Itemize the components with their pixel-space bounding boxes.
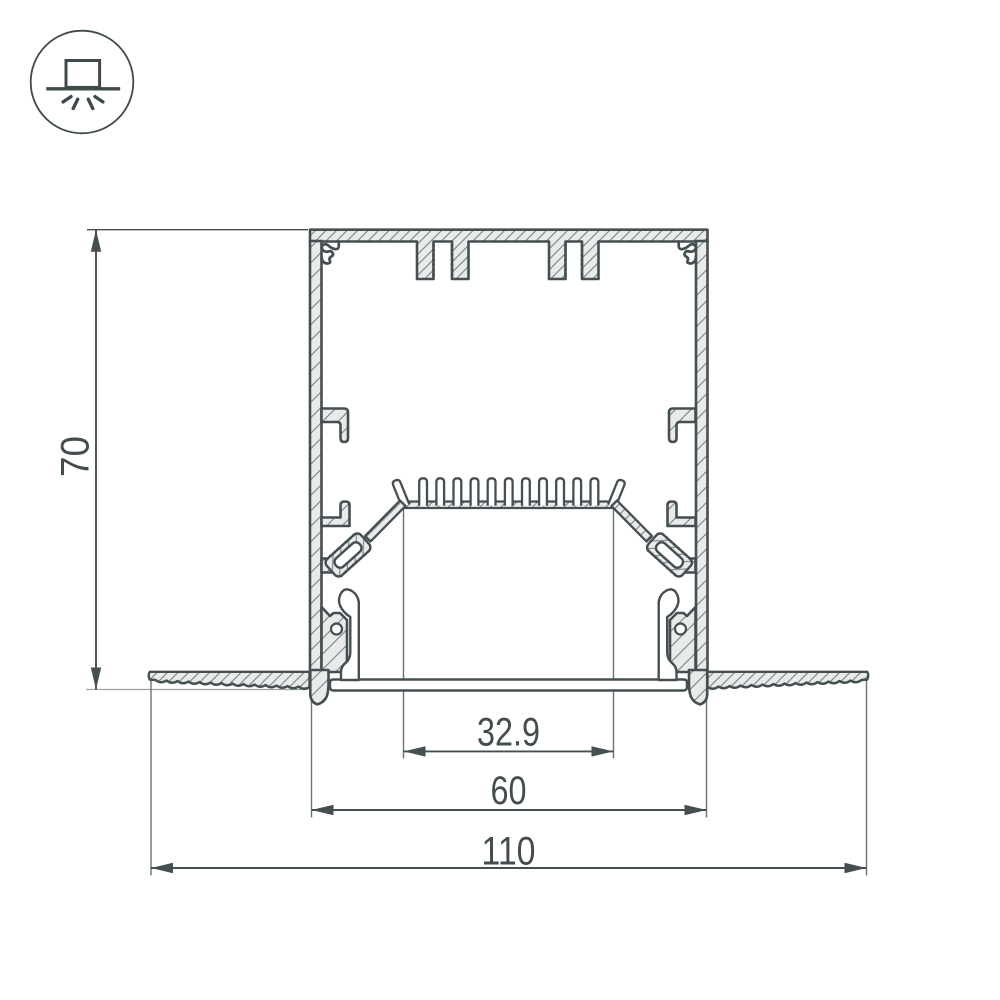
svg-text:32.9: 32.9 — [477, 711, 540, 755]
svg-text:60: 60 — [491, 769, 527, 813]
svg-text:70: 70 — [54, 436, 98, 477]
svg-text:110: 110 — [482, 830, 536, 874]
